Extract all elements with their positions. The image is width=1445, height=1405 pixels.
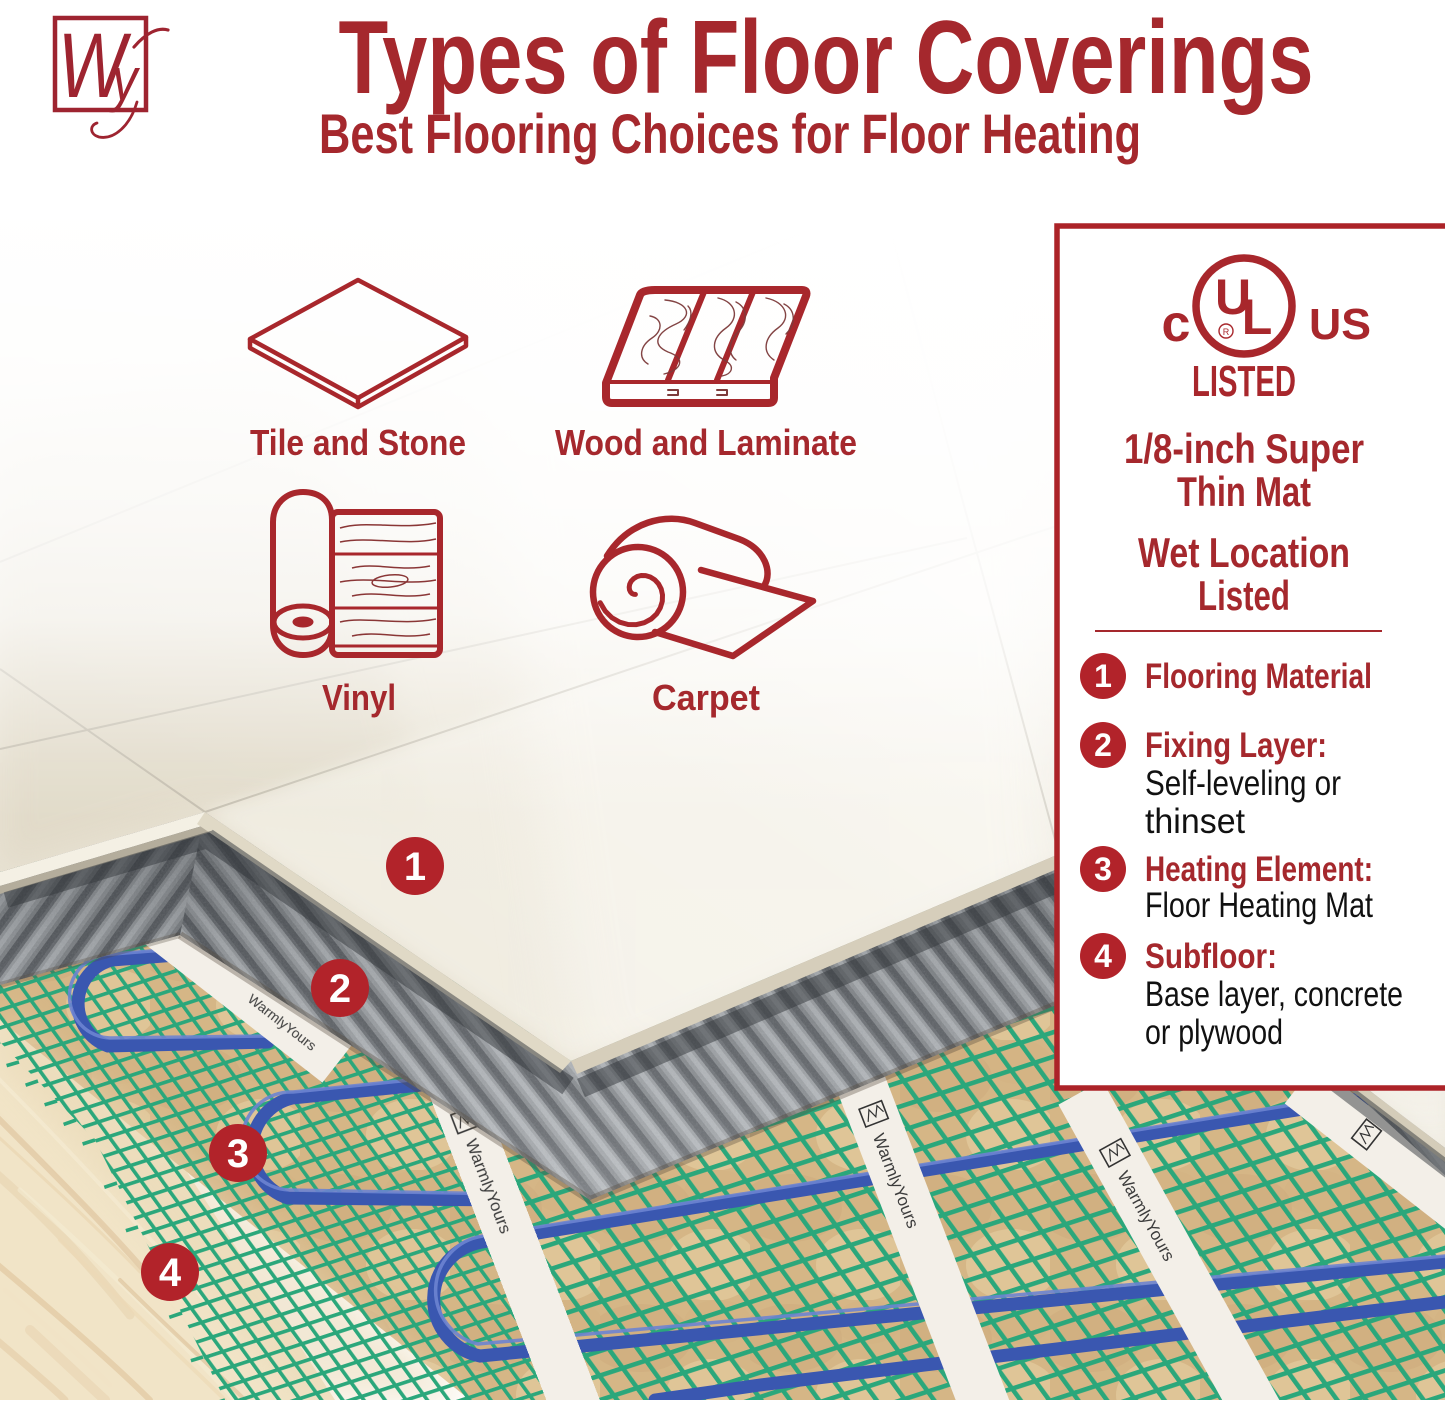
- svg-text:4: 4: [159, 1251, 182, 1295]
- svg-text:Subfloor:: Subfloor:: [1145, 937, 1277, 976]
- svg-text:R: R: [1223, 327, 1230, 337]
- svg-text:Base layer, concrete: Base layer, concrete: [1145, 975, 1403, 1014]
- svg-text:Types of Floor Coverings: Types of Floor Coverings: [339, 0, 1314, 116]
- svg-text:thinset: thinset: [1145, 802, 1245, 841]
- svg-text:Carpet: Carpet: [652, 677, 760, 718]
- svg-text:3: 3: [1094, 851, 1112, 887]
- svg-text:1/8-inch Super: 1/8-inch Super: [1124, 425, 1364, 472]
- svg-text:Fixing Layer:: Fixing Layer:: [1145, 726, 1327, 765]
- svg-text:US: US: [1309, 300, 1371, 349]
- svg-text:Wet Location: Wet Location: [1138, 529, 1350, 576]
- svg-text:Vinyl: Vinyl: [322, 677, 396, 718]
- svg-text:Tile and Stone: Tile and Stone: [250, 422, 466, 463]
- svg-text:Best Flooring Choices for Floo: Best Flooring Choices for Floor Heating: [319, 102, 1141, 165]
- svg-text:Self-leveling or: Self-leveling or: [1145, 764, 1341, 803]
- svg-text:L: L: [1242, 289, 1273, 345]
- svg-text:2: 2: [329, 967, 351, 1011]
- svg-text:Heating Element:: Heating Element:: [1145, 850, 1373, 889]
- svg-text:Thin Mat: Thin Mat: [1177, 468, 1311, 515]
- svg-text:Listed: Listed: [1198, 572, 1290, 619]
- svg-text:Floor Heating Mat: Floor Heating Mat: [1145, 886, 1373, 925]
- svg-text:c: c: [1162, 295, 1191, 353]
- svg-text:2: 2: [1094, 727, 1112, 763]
- svg-text:Wood and Laminate: Wood and Laminate: [555, 422, 857, 463]
- svg-text:or plywood: or plywood: [1145, 1013, 1283, 1052]
- svg-text:1: 1: [404, 845, 426, 889]
- svg-text:4: 4: [1094, 938, 1112, 974]
- svg-text:3: 3: [227, 1132, 249, 1176]
- svg-text:1: 1: [1094, 658, 1112, 694]
- svg-text:Flooring Material: Flooring Material: [1145, 657, 1372, 696]
- svg-text:LISTED: LISTED: [1192, 357, 1296, 406]
